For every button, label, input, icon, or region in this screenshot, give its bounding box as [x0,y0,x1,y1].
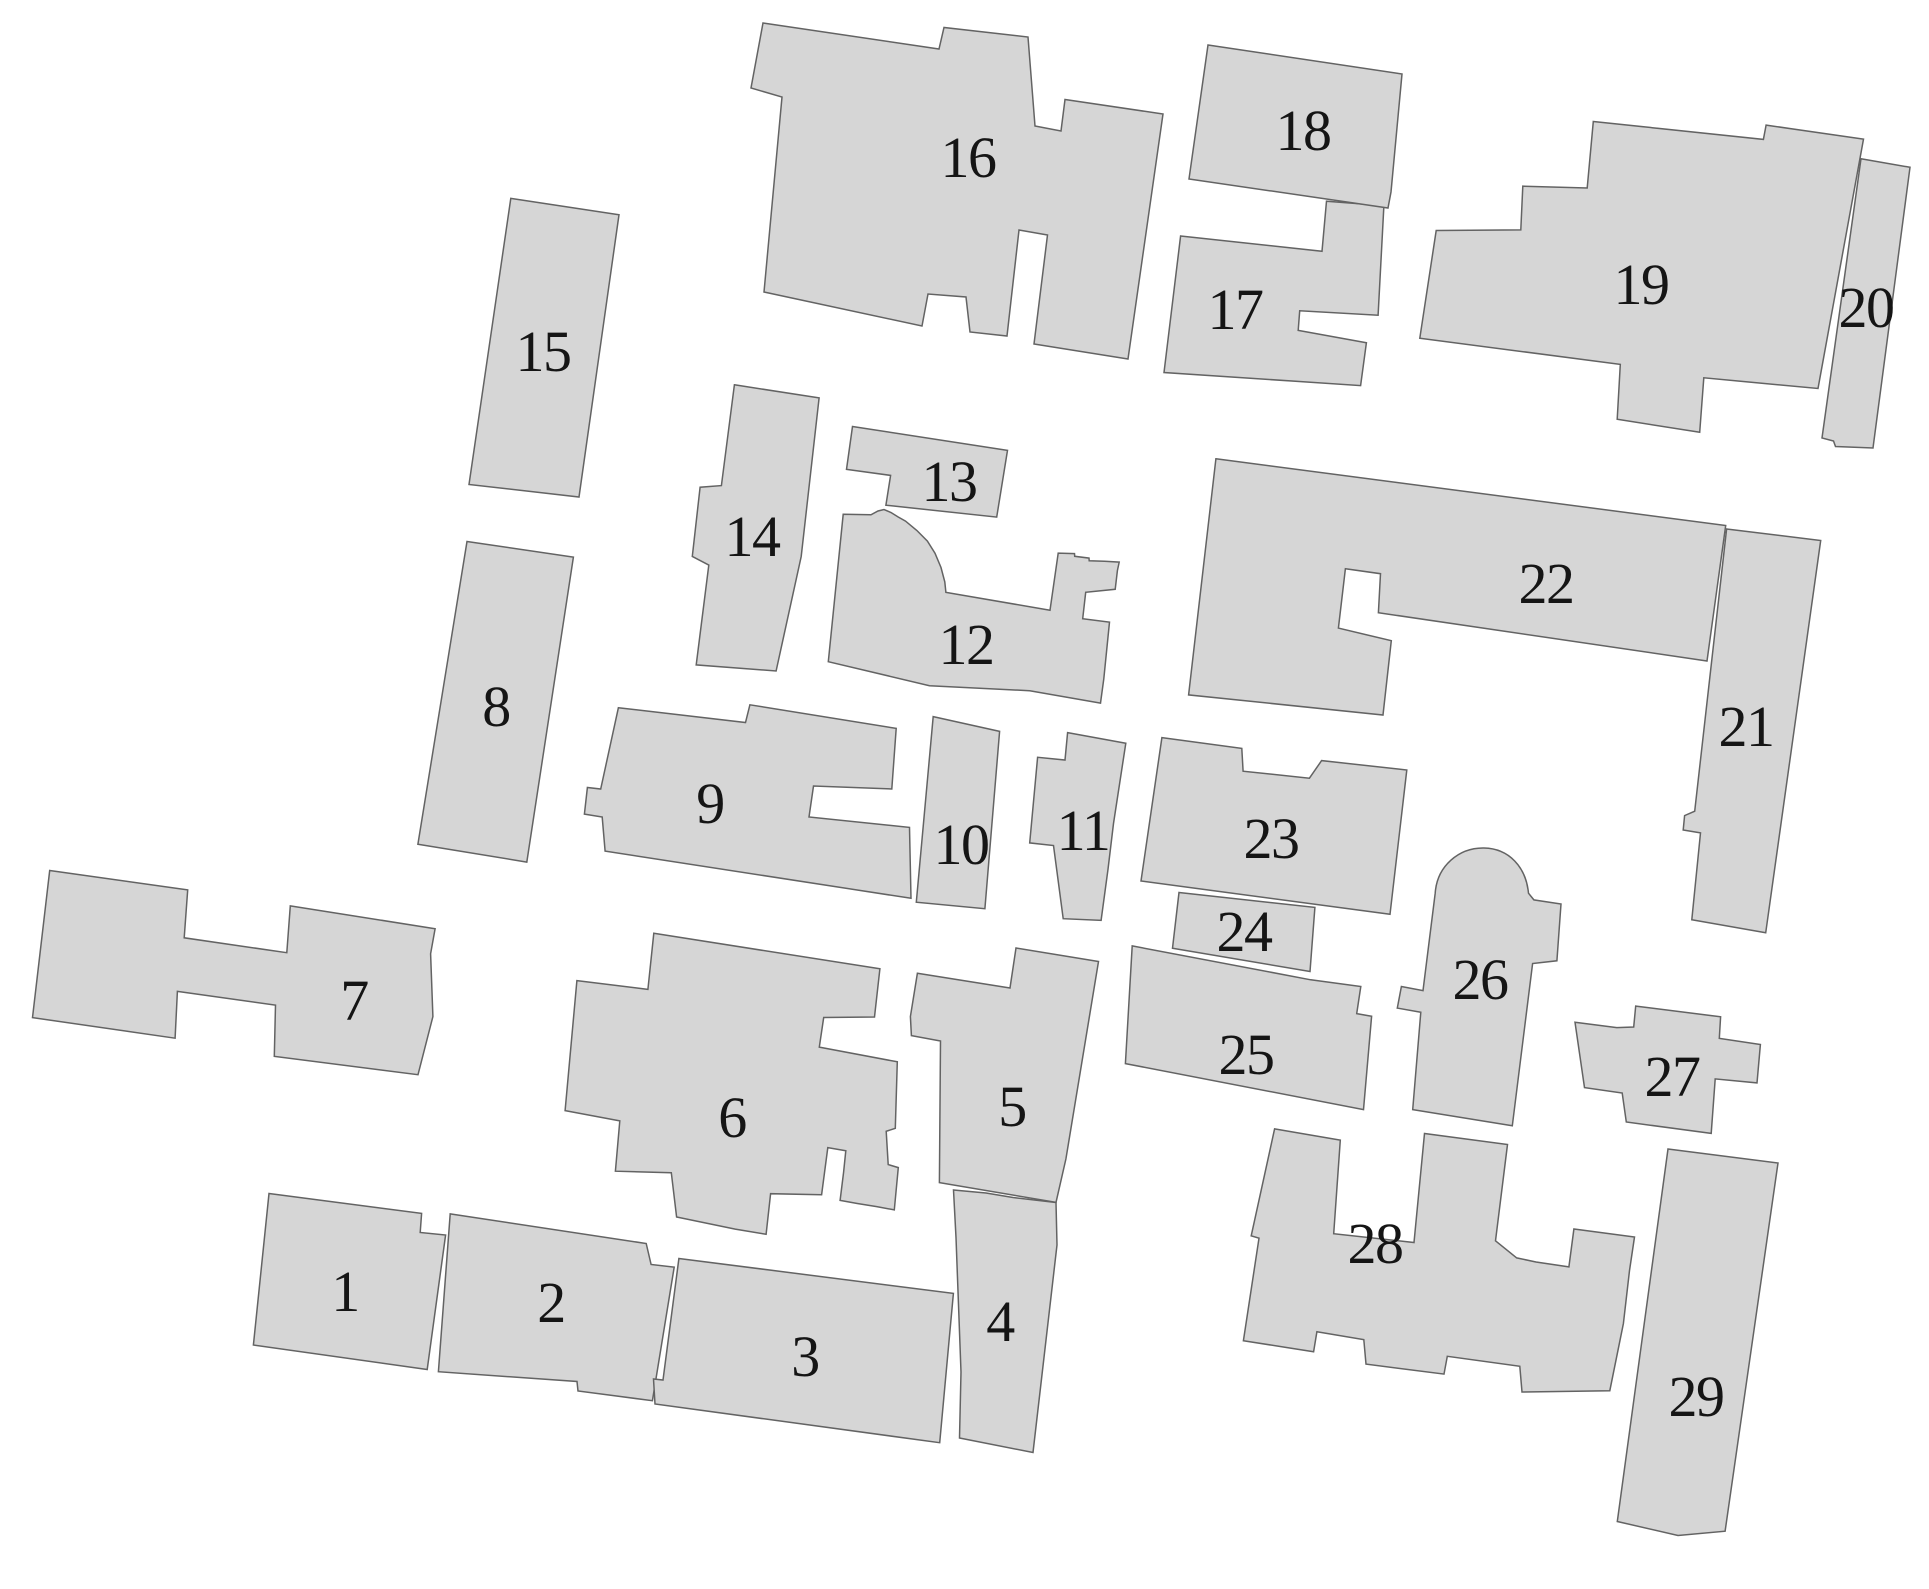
svg-text:13: 13 [922,449,977,514]
svg-text:21: 21 [1719,694,1774,759]
svg-text:18: 18 [1276,98,1331,163]
svg-text:24: 24 [1217,899,1274,964]
svg-text:8: 8 [482,674,510,739]
svg-text:27: 27 [1645,1044,1701,1109]
svg-text:26: 26 [1453,947,1509,1012]
svg-text:19: 19 [1614,252,1669,317]
svg-text:5: 5 [998,1074,1026,1139]
svg-text:22: 22 [1519,551,1574,616]
svg-text:2: 2 [537,1270,565,1335]
svg-text:9: 9 [696,771,724,836]
svg-text:7: 7 [340,968,368,1033]
svg-text:3: 3 [791,1324,819,1389]
svg-text:17: 17 [1208,277,1264,342]
svg-text:12: 12 [939,612,994,677]
svg-text:6: 6 [718,1085,746,1150]
svg-text:10: 10 [934,812,989,877]
svg-text:23: 23 [1244,806,1299,871]
svg-text:11: 11 [1057,798,1110,863]
svg-text:16: 16 [941,125,997,190]
svg-text:4: 4 [986,1289,1015,1354]
svg-text:28: 28 [1348,1211,1403,1276]
svg-text:14: 14 [725,504,782,569]
svg-text:25: 25 [1219,1022,1274,1087]
svg-text:1: 1 [331,1259,359,1324]
svg-text:15: 15 [516,319,571,384]
svg-text:20: 20 [1839,275,1894,340]
svg-text:29: 29 [1669,1364,1724,1429]
